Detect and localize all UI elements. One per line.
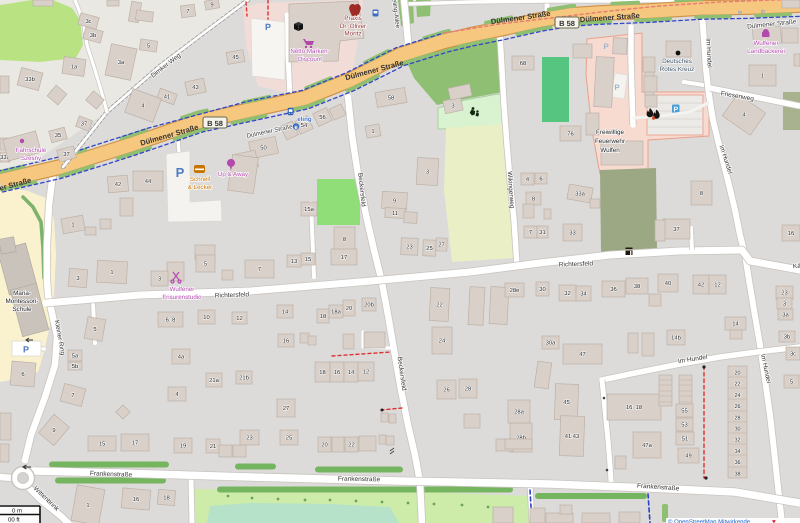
svg-text:P: P bbox=[614, 83, 620, 92]
svg-text:20: 20 bbox=[734, 371, 740, 377]
svg-text:14b: 14b bbox=[671, 335, 681, 342]
svg-text:51: 51 bbox=[682, 437, 688, 443]
svg-text:Frisurenstudio: Frisurenstudio bbox=[162, 294, 202, 301]
svg-text:27: 27 bbox=[438, 242, 444, 249]
svg-text:Feuerwehr: Feuerwehr bbox=[595, 138, 625, 145]
svg-text:16: 16 bbox=[334, 369, 340, 376]
svg-text:Rotes Kreuz: Rotes Kreuz bbox=[660, 66, 695, 73]
svg-text:Maria-: Maria- bbox=[13, 290, 31, 297]
svg-text:42: 42 bbox=[115, 181, 121, 188]
svg-text:Up & Away: Up & Away bbox=[218, 171, 249, 178]
svg-text:Schule: Schule bbox=[12, 306, 32, 313]
svg-text:Montessori-: Montessori- bbox=[6, 298, 39, 305]
svg-text:3: 3 bbox=[451, 103, 454, 110]
svg-text:3b: 3b bbox=[90, 32, 96, 39]
svg-text:5: 5 bbox=[147, 44, 150, 50]
svg-text:20: 20 bbox=[346, 305, 352, 312]
svg-text:Frankenstraße: Frankenstraße bbox=[90, 470, 133, 478]
svg-text:Landbäckerei: Landbäckerei bbox=[747, 48, 785, 55]
svg-text:& Lecker: & Lecker bbox=[188, 184, 212, 191]
svg-text:19: 19 bbox=[180, 443, 186, 450]
svg-text:25: 25 bbox=[286, 435, 292, 442]
svg-text:30a: 30a bbox=[546, 340, 556, 347]
svg-text:30: 30 bbox=[734, 427, 740, 433]
svg-text:Richtersfeld: Richtersfeld bbox=[559, 260, 594, 268]
svg-text:22: 22 bbox=[436, 302, 442, 309]
svg-text:31: 31 bbox=[539, 229, 545, 236]
svg-text:28a: 28a bbox=[514, 409, 524, 416]
svg-text:9: 9 bbox=[210, 2, 213, 9]
svg-text:Frankenstraße: Frankenstraße bbox=[338, 476, 381, 484]
svg-text:20: 20 bbox=[321, 442, 327, 449]
svg-text:76: 76 bbox=[567, 131, 573, 138]
svg-text:68: 68 bbox=[520, 60, 526, 67]
svg-text:26: 26 bbox=[734, 404, 740, 410]
svg-text:23: 23 bbox=[406, 244, 412, 251]
svg-text:5b: 5b bbox=[72, 363, 78, 370]
svg-text:41: 41 bbox=[164, 95, 170, 101]
svg-text:24: 24 bbox=[439, 338, 446, 345]
svg-text:41:43: 41:43 bbox=[565, 433, 580, 440]
svg-text:32: 32 bbox=[564, 290, 570, 297]
svg-text:1: 1 bbox=[71, 223, 74, 229]
svg-text:6: 6 bbox=[539, 176, 542, 183]
svg-text:♥: ♥ bbox=[772, 519, 776, 523]
svg-text:17: 17 bbox=[132, 441, 138, 447]
svg-text:10: 10 bbox=[203, 314, 209, 321]
svg-text:18: 18 bbox=[320, 313, 326, 320]
svg-text:eling: eling bbox=[297, 116, 312, 123]
svg-text:18: 18 bbox=[319, 369, 325, 376]
svg-text:28: 28 bbox=[465, 386, 471, 393]
svg-text:5: 5 bbox=[93, 327, 96, 333]
svg-text:12: 12 bbox=[714, 282, 720, 289]
svg-text:26: 26 bbox=[443, 387, 449, 394]
svg-text:12: 12 bbox=[363, 369, 369, 376]
svg-text:5: 5 bbox=[204, 262, 207, 268]
svg-text:Kä: Kä bbox=[793, 263, 800, 271]
svg-text:1: 1 bbox=[110, 270, 113, 276]
svg-text:55: 55 bbox=[681, 409, 687, 415]
svg-text:3: 3 bbox=[158, 276, 161, 283]
svg-text:56: 56 bbox=[319, 114, 325, 121]
svg-text:Moritz: Moritz bbox=[344, 31, 361, 38]
svg-text:24: 24 bbox=[734, 393, 740, 399]
svg-text:Wulfen: Wulfen bbox=[600, 147, 620, 154]
svg-text:25: 25 bbox=[426, 245, 432, 252]
svg-text:9: 9 bbox=[52, 427, 55, 434]
svg-text:5: 5 bbox=[790, 380, 793, 386]
svg-text:© OpenStreetMap Mitwirkende: © OpenStreetMap Mitwirkende bbox=[668, 519, 751, 523]
svg-text:33: 33 bbox=[569, 230, 575, 237]
svg-text:49: 49 bbox=[685, 453, 691, 460]
svg-text:15: 15 bbox=[99, 442, 105, 448]
svg-text:1: 1 bbox=[371, 129, 374, 135]
svg-text:58: 58 bbox=[388, 95, 394, 102]
svg-text:4a: 4a bbox=[178, 355, 185, 361]
svg-text:30: 30 bbox=[539, 286, 545, 293]
svg-text:1: 1 bbox=[86, 503, 89, 509]
svg-text:7: 7 bbox=[186, 9, 189, 15]
svg-text:18: 18 bbox=[163, 495, 169, 502]
svg-text:8: 8 bbox=[343, 236, 346, 243]
svg-text:Szesny: Szesny bbox=[21, 155, 42, 162]
svg-text:3b: 3b bbox=[784, 334, 790, 341]
svg-text:23: 23 bbox=[781, 290, 787, 297]
svg-text:6: 8: 6: 8 bbox=[166, 317, 176, 324]
svg-text:9: 9 bbox=[393, 198, 396, 205]
svg-text:B 58: B 58 bbox=[207, 119, 223, 128]
svg-text:37: 37 bbox=[81, 121, 87, 128]
svg-text:32: 32 bbox=[734, 438, 740, 444]
svg-text:15: 15 bbox=[305, 257, 311, 263]
svg-text:P: P bbox=[265, 22, 271, 32]
svg-text:Freiwillige: Freiwillige bbox=[596, 129, 624, 136]
svg-text:18a: 18a bbox=[331, 309, 341, 316]
svg-text:17: 17 bbox=[341, 255, 347, 261]
svg-text:20b: 20b bbox=[364, 302, 374, 309]
svg-text:54: 54 bbox=[301, 123, 308, 129]
svg-text:Netto Marken-: Netto Marken- bbox=[290, 48, 329, 55]
svg-text:3c: 3c bbox=[85, 18, 91, 25]
svg-text:3a: 3a bbox=[118, 59, 125, 66]
svg-text:38: 38 bbox=[734, 471, 740, 477]
svg-text:33b: 33b bbox=[25, 76, 35, 83]
svg-text:Deutsches: Deutsches bbox=[662, 58, 692, 65]
svg-text:43: 43 bbox=[192, 84, 198, 91]
svg-text:0 m: 0 m bbox=[12, 508, 22, 515]
svg-text:7: 7 bbox=[529, 230, 532, 236]
svg-text:21a: 21a bbox=[209, 377, 219, 384]
svg-text:12: 12 bbox=[236, 315, 242, 322]
svg-text:8: 8 bbox=[532, 196, 535, 203]
svg-text:Dr. Oliver: Dr. Oliver bbox=[340, 23, 366, 30]
svg-text:P: P bbox=[761, 9, 765, 16]
svg-text:38: 38 bbox=[634, 283, 640, 290]
svg-text:36: 36 bbox=[610, 286, 616, 293]
svg-text:3a: 3a bbox=[782, 312, 789, 319]
svg-text:11: 11 bbox=[392, 211, 398, 217]
svg-text:15a: 15a bbox=[304, 207, 314, 213]
svg-text:47: 47 bbox=[579, 352, 585, 358]
svg-text:Discount: Discount bbox=[298, 56, 322, 63]
svg-text:00 ft: 00 ft bbox=[8, 517, 20, 523]
svg-text:35: 35 bbox=[55, 132, 61, 139]
svg-text:16: 16 bbox=[133, 496, 139, 503]
svg-text:P: P bbox=[603, 42, 609, 51]
svg-text:23: 23 bbox=[246, 435, 252, 442]
svg-text:Schnell: Schnell bbox=[190, 176, 210, 183]
svg-text:45: 45 bbox=[232, 55, 238, 61]
svg-text:Fahrschule: Fahrschule bbox=[16, 147, 47, 154]
svg-text:3c: 3c bbox=[790, 351, 796, 358]
svg-text:34: 34 bbox=[580, 291, 587, 298]
svg-text:16: 16 bbox=[788, 230, 794, 237]
svg-text:Wulfener: Wulfener bbox=[753, 40, 778, 47]
svg-text:B 58: B 58 bbox=[559, 19, 575, 28]
svg-text:16: 18: 16: 18 bbox=[626, 404, 642, 411]
svg-text:3: 3 bbox=[426, 169, 429, 176]
svg-text:7: 7 bbox=[71, 393, 74, 399]
svg-text:5a: 5a bbox=[72, 354, 79, 360]
svg-text:21: 21 bbox=[210, 443, 216, 450]
svg-text:P: P bbox=[23, 345, 29, 355]
svg-text:8: 8 bbox=[700, 190, 703, 197]
svg-text:Richtersfeld: Richtersfeld bbox=[215, 291, 250, 299]
svg-text:14: 14 bbox=[732, 322, 739, 328]
svg-text:44: 44 bbox=[145, 179, 152, 185]
svg-text:3: 3 bbox=[783, 301, 786, 308]
svg-text:6: 6 bbox=[21, 371, 24, 378]
svg-text:22: 22 bbox=[348, 442, 354, 449]
svg-text:14: 14 bbox=[282, 310, 289, 316]
svg-text:45: 45 bbox=[563, 400, 569, 406]
svg-text:16: 16 bbox=[283, 338, 289, 345]
svg-text:3: 3 bbox=[76, 275, 79, 282]
svg-text:Wulfener: Wulfener bbox=[170, 286, 195, 293]
svg-text:50: 50 bbox=[260, 145, 266, 152]
svg-text:40: 40 bbox=[665, 280, 671, 287]
svg-text:Praxis: Praxis bbox=[344, 15, 362, 22]
svg-text:28: 28 bbox=[734, 415, 740, 421]
svg-text:27: 27 bbox=[283, 405, 289, 412]
svg-text:21b: 21b bbox=[239, 375, 249, 382]
svg-text:P: P bbox=[738, 10, 742, 17]
svg-text:47a: 47a bbox=[642, 443, 652, 449]
svg-text:42: 42 bbox=[698, 282, 704, 289]
svg-text:28e: 28e bbox=[510, 287, 520, 294]
svg-text:37: 37 bbox=[673, 226, 679, 233]
svg-text:53: 53 bbox=[681, 422, 687, 429]
svg-text:1: 1 bbox=[761, 74, 764, 80]
svg-text:22: 22 bbox=[734, 382, 740, 388]
svg-text:P: P bbox=[176, 165, 185, 180]
svg-text:1a: 1a bbox=[71, 65, 78, 71]
svg-text:14: 14 bbox=[348, 370, 355, 376]
svg-text:33a: 33a bbox=[575, 191, 585, 198]
svg-text:13: 13 bbox=[291, 258, 297, 265]
svg-text:34: 34 bbox=[734, 449, 740, 455]
svg-text:36: 36 bbox=[734, 460, 740, 466]
svg-text:7: 7 bbox=[258, 267, 261, 273]
svg-text:37: 37 bbox=[63, 151, 69, 158]
